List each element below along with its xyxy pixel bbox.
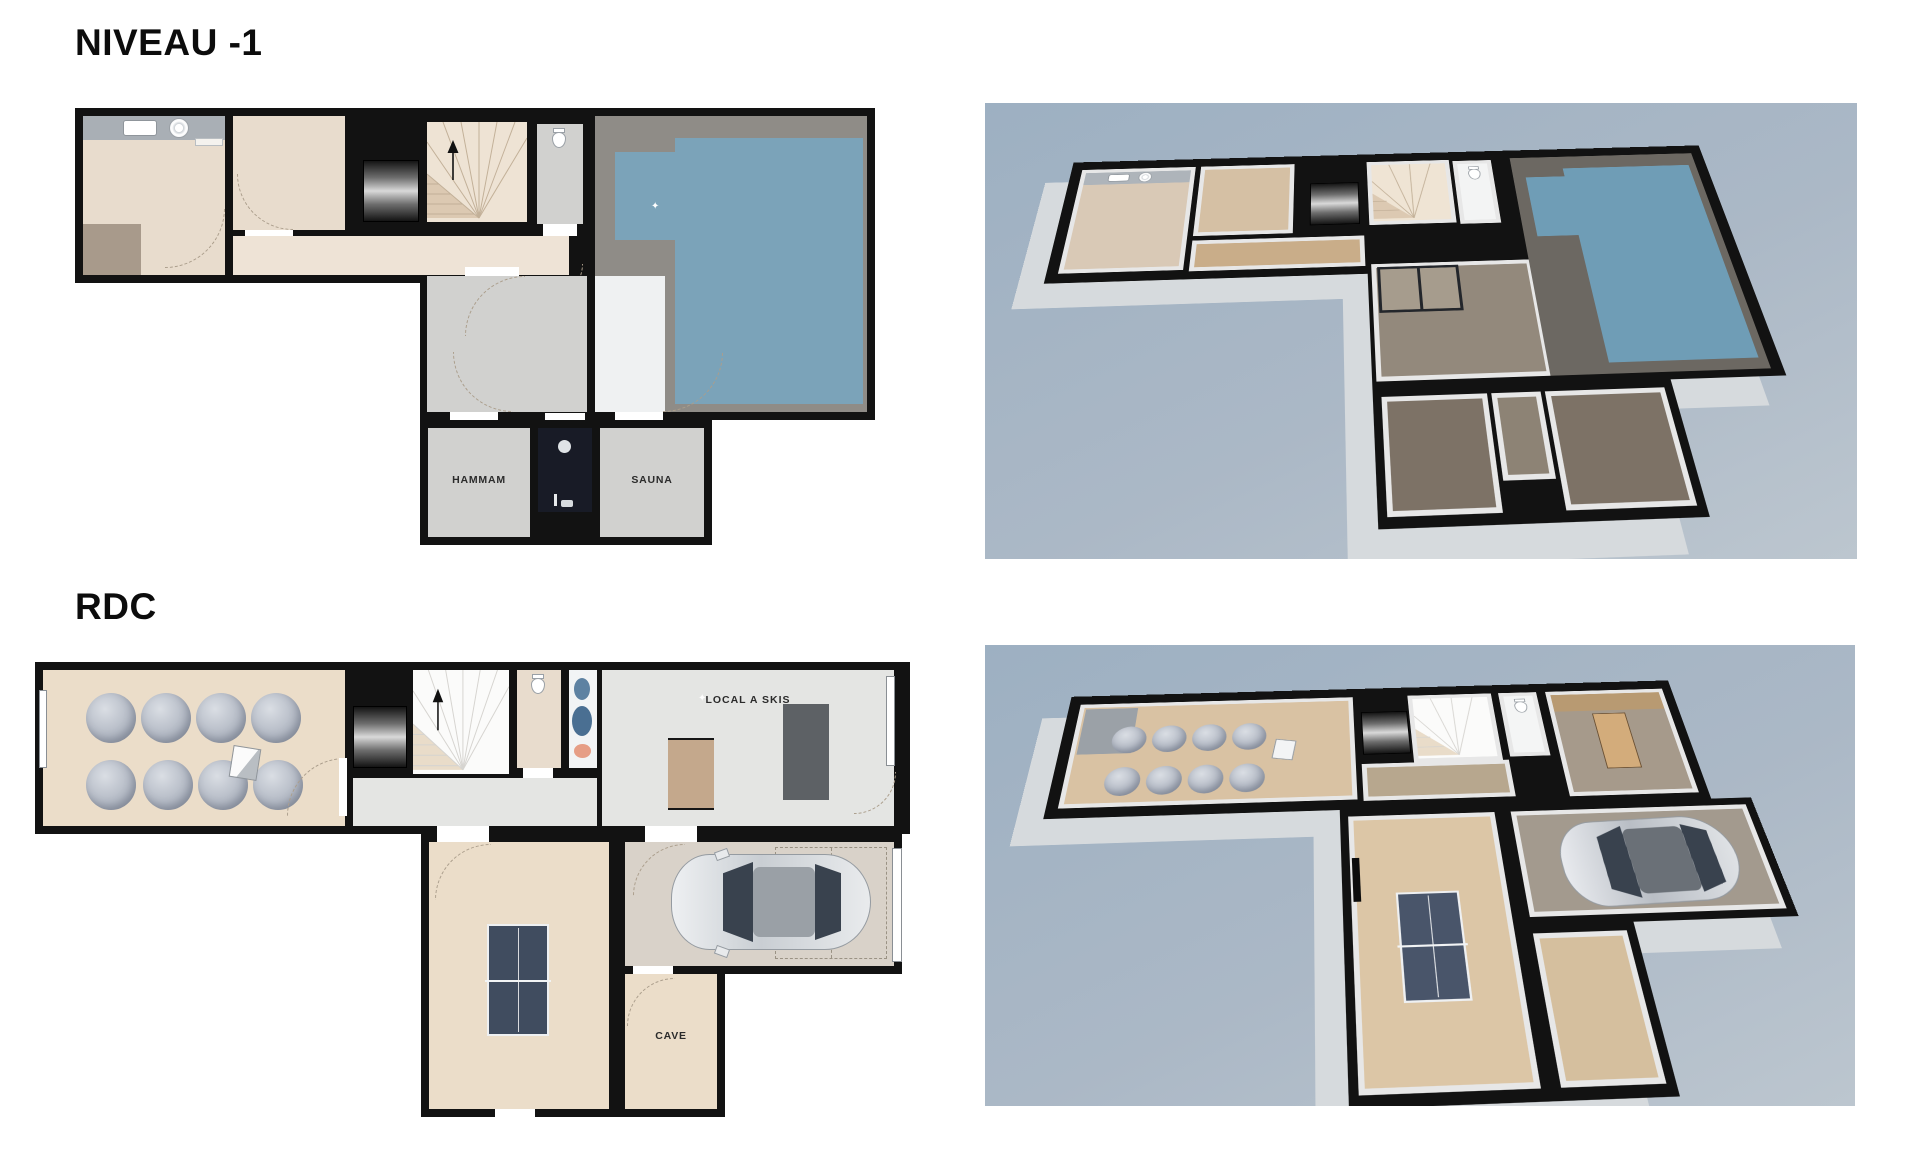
door-leaf xyxy=(668,738,714,810)
rdc-2d-plan: ✦ LOCAL A SKIS xyxy=(35,662,910,1122)
jar-icon xyxy=(572,706,592,736)
car-icon xyxy=(671,854,871,950)
window xyxy=(886,676,895,766)
door-gap xyxy=(339,758,347,816)
pouf-icon xyxy=(86,693,136,743)
rdc-3d-building xyxy=(985,679,1855,1106)
garage-door xyxy=(892,848,902,962)
jar-icon xyxy=(574,744,591,758)
door-gap xyxy=(495,1109,535,1117)
staircase-3d xyxy=(1407,693,1503,762)
pool-water xyxy=(615,152,675,240)
staircase-icon xyxy=(427,122,527,222)
rdc-title: RDC xyxy=(75,586,157,628)
corridor-3d xyxy=(1362,760,1516,801)
pantry-cell xyxy=(569,670,597,768)
hammam-room-3d xyxy=(1381,393,1503,517)
laundry-room xyxy=(83,116,225,275)
door-gap xyxy=(523,768,553,778)
pouf-icon xyxy=(1144,765,1183,795)
ping-pong-table xyxy=(487,924,549,1036)
pouf-icon xyxy=(86,760,136,810)
pouf-icon xyxy=(251,693,301,743)
pouf-icon xyxy=(1191,724,1228,752)
wc-room xyxy=(537,124,583,224)
staircase-icon xyxy=(1371,163,1451,221)
wc-room xyxy=(517,670,561,768)
pouf-icon xyxy=(143,760,193,810)
store-room xyxy=(233,116,345,230)
window xyxy=(39,690,47,768)
niveau1-3d-view xyxy=(985,103,1857,559)
toilet-icon xyxy=(1467,166,1481,179)
elevator-shaft xyxy=(1310,182,1360,225)
door-swing-arc xyxy=(627,978,723,1074)
toilet-icon xyxy=(1513,699,1529,713)
hammam-label: HAMMAM xyxy=(428,474,530,486)
door-leaf xyxy=(1592,713,1642,769)
niveau1-2d-plan: ✦ HAMMAM SAUNA xyxy=(75,108,875,548)
laundry-room-3d xyxy=(1058,167,1196,274)
jar-icon xyxy=(574,678,590,700)
ping-pong-table xyxy=(1396,891,1473,1004)
pouf-icon xyxy=(196,693,246,743)
elevator-shaft xyxy=(353,706,407,768)
pool-side-tiles xyxy=(595,276,665,412)
shower-cell xyxy=(538,428,592,512)
shower-head-icon xyxy=(558,440,571,453)
ski-room-label: LOCAL A SKIS xyxy=(602,694,894,706)
washer-icon xyxy=(169,118,189,138)
floor-mat xyxy=(83,224,141,275)
store-room-3d xyxy=(1193,164,1295,236)
sink-icon xyxy=(123,120,157,136)
garage xyxy=(625,842,894,966)
table-net xyxy=(485,980,551,982)
pouf-icon xyxy=(1150,725,1188,753)
door-gap xyxy=(465,267,519,276)
sauna-label: SAUNA xyxy=(600,474,704,486)
sparkle-icon: ✦ xyxy=(651,202,659,212)
door-gap xyxy=(545,413,585,420)
stove-icon xyxy=(1271,739,1296,760)
pouf-icon xyxy=(1102,767,1143,797)
staircase xyxy=(413,670,509,774)
counter xyxy=(1083,170,1191,185)
door-gap xyxy=(543,224,577,236)
corridor xyxy=(353,778,597,826)
cave-label: CAVE xyxy=(625,1030,717,1042)
staircase xyxy=(427,122,527,222)
wall-partition xyxy=(597,670,602,778)
staircase-icon xyxy=(413,670,509,774)
car-icon xyxy=(1551,814,1754,910)
glass-vestibule xyxy=(1377,265,1464,313)
toilet-icon xyxy=(552,128,566,148)
pouf-icon xyxy=(1186,764,1224,794)
door-gap xyxy=(633,966,673,974)
pouf-icon xyxy=(141,693,191,743)
stove-icon xyxy=(229,745,262,781)
pouf-icon xyxy=(1231,723,1267,750)
pouf-icon xyxy=(1228,763,1265,793)
door-gap xyxy=(437,826,489,842)
boot-room-3d xyxy=(1058,697,1358,808)
door-gap xyxy=(450,412,498,420)
niveau1-title: NIVEAU -1 xyxy=(75,22,262,64)
sink-icon xyxy=(1107,174,1130,182)
door-gap xyxy=(645,826,697,842)
niveau1-3d-building xyxy=(985,144,1857,559)
games-room xyxy=(429,842,609,1109)
elevator-shaft xyxy=(1361,711,1411,755)
garage-3d xyxy=(1511,804,1787,917)
corridor-3d xyxy=(1189,235,1366,271)
boot-room xyxy=(43,670,345,826)
tv-screen xyxy=(1352,858,1361,902)
door-swing-arc xyxy=(237,118,349,230)
staircase-icon xyxy=(1412,697,1497,759)
shelf xyxy=(195,138,223,146)
glass-door-frame xyxy=(1417,268,1424,309)
brick-wall-face xyxy=(1550,692,1664,712)
door-gap xyxy=(615,412,663,420)
rdc-3d-view xyxy=(985,645,1855,1106)
staircase-3d xyxy=(1367,160,1457,225)
elevator-shaft xyxy=(363,160,419,222)
fixture-icon xyxy=(561,500,573,507)
toilet-icon xyxy=(531,674,545,694)
fixture-icon xyxy=(554,494,557,506)
doormat xyxy=(783,704,829,800)
